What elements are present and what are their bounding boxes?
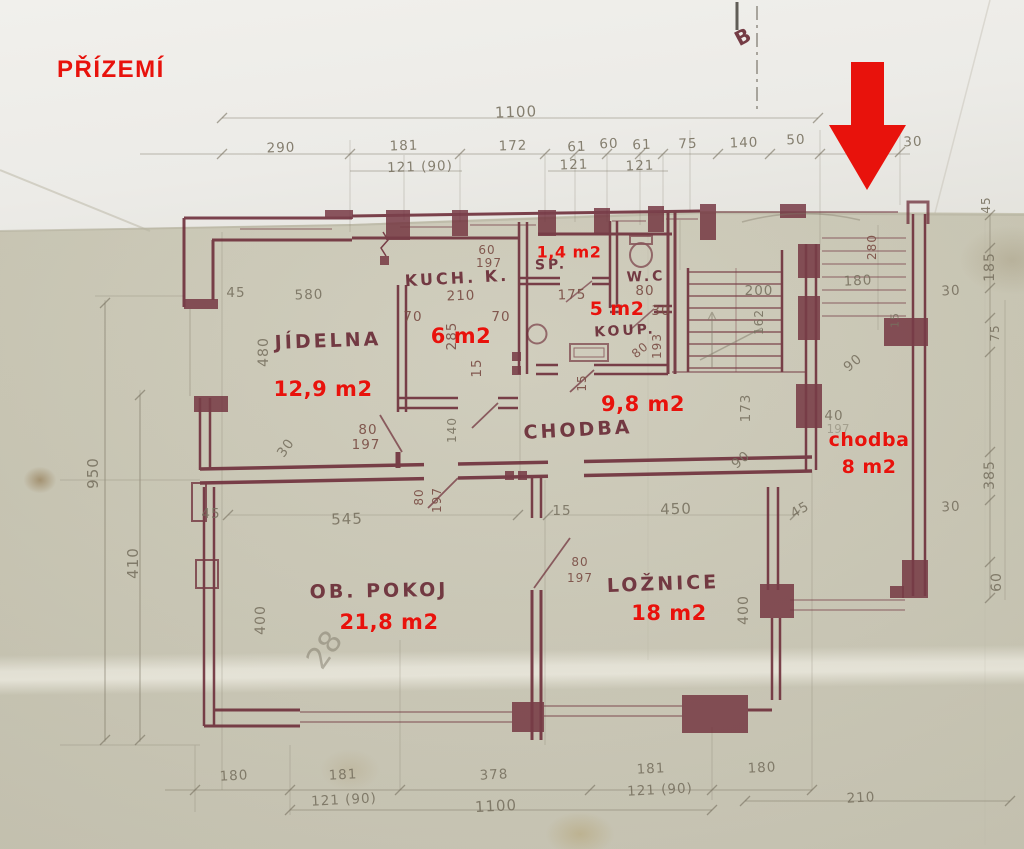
section-line-b [737, 2, 757, 114]
dimension-label: 15 [552, 503, 571, 519]
dimension-label: 60 [989, 572, 1005, 592]
dimension-label: 75 [988, 324, 1002, 341]
dimension-label: 121 (90) [387, 158, 453, 176]
dimension-label: 580 [294, 287, 323, 304]
room-area-label: 9,8 m2 [601, 392, 685, 416]
dimension-label: 1100 [474, 796, 517, 816]
dimension-label: 185 [982, 252, 998, 282]
dimension-label: 545 [331, 509, 363, 528]
dimension-label: 280 [865, 234, 879, 260]
room-name-label: LOŽNICE [607, 571, 720, 597]
room-area-label: 21,8 m2 [339, 610, 438, 634]
dimension-label: 1100 [495, 102, 538, 121]
dimension-label: 950 [84, 457, 102, 489]
dimension-label: 197 [567, 571, 593, 585]
dimension-label: 60 [599, 136, 619, 153]
dimension-label: 80 [358, 422, 377, 438]
dimension-label: 181 [328, 766, 358, 783]
dimension-label: 121 [625, 158, 654, 175]
dimension-label: 210 [446, 288, 475, 305]
dimension-label: 15 [889, 312, 902, 328]
dimension-label: 61 [567, 139, 587, 156]
dimension-label: 162 [752, 309, 766, 335]
dimension-label: 180 [747, 759, 777, 776]
page-title: PŘÍZEMÍ [57, 56, 165, 84]
dimension-label: 80 [635, 283, 654, 299]
dimension-label: 450 [660, 499, 692, 518]
room-name-label: chodba [829, 429, 910, 451]
dimension-label: 175 [557, 287, 586, 304]
dimension-label: 30 [941, 283, 961, 300]
dimension-label: 180 [843, 272, 873, 289]
room-name-label: W.C [626, 268, 665, 285]
dimension-label: 385 [982, 460, 998, 490]
dimension-label: 45 [201, 506, 220, 522]
room-name-label: OB. POKOJ [309, 579, 448, 603]
dimension-label: 70 [491, 309, 510, 325]
room-name-label: KOUP. [594, 321, 656, 340]
dimension-label: 197 [430, 487, 444, 513]
dimension-label: 80 [571, 555, 588, 569]
dimension-label: 80 [412, 488, 426, 505]
dimension-label: 75 [678, 136, 698, 153]
dimension-label: 378 [479, 766, 509, 783]
dimension-label: 181 [636, 760, 666, 777]
bathtub-icon [570, 344, 608, 361]
dimension-label: 15 [575, 374, 589, 391]
dimension-label: 410 [124, 547, 142, 579]
dimension-label: 140 [729, 135, 758, 152]
dimension-label: 180 [219, 767, 249, 784]
dimension-label: 45 [226, 285, 245, 301]
room-area-label: 12,9 m2 [273, 377, 372, 401]
stairs [672, 250, 806, 372]
dimension-label: 172 [498, 138, 527, 155]
dimension-label: 210 [846, 789, 876, 806]
red-arrow [829, 62, 906, 190]
floor-plan-scan: PŘÍZEMÍ 1100290181121 (90)17261606112112… [0, 0, 1024, 849]
room-area-label: 1,4 m2 [537, 243, 602, 262]
dimension-label: 173 [738, 394, 754, 423]
dimension-label: 121 [559, 157, 588, 174]
dimension-label: 400 [253, 605, 269, 635]
dimension-label: 290 [266, 140, 295, 157]
dimension-label: 200 [745, 283, 774, 299]
room-area-label: 18 m2 [631, 601, 707, 625]
room-area-label: 8 m2 [842, 456, 897, 478]
dimension-label: 45 [979, 196, 993, 213]
dimension-label: 30 [651, 303, 670, 319]
dimension-label: 140 [445, 417, 459, 443]
dimension-label: 400 [736, 595, 752, 625]
dimension-label: 30 [903, 134, 923, 151]
washbasin-icon [528, 325, 547, 344]
dimension-label: 15 [469, 358, 485, 377]
walls-layer [184, 202, 928, 740]
dimension-label: 480 [256, 337, 272, 367]
toilet-icon [630, 236, 652, 267]
dimension-label: 197 [352, 437, 381, 453]
dimension-label: 30 [941, 499, 961, 516]
room-area-label: 6 m2 [431, 324, 491, 348]
dimension-label: 50 [786, 132, 806, 149]
floor-plan-canvas [0, 0, 1024, 849]
dimension-label: 70 [403, 309, 422, 325]
dimension-label: 61 [632, 137, 652, 154]
dimension-label: 181 [389, 138, 418, 155]
room-name-label: JÍDELNA [274, 328, 381, 354]
room-area-label: 5 m2 [590, 298, 645, 320]
dimension-label: 60 [478, 243, 495, 257]
